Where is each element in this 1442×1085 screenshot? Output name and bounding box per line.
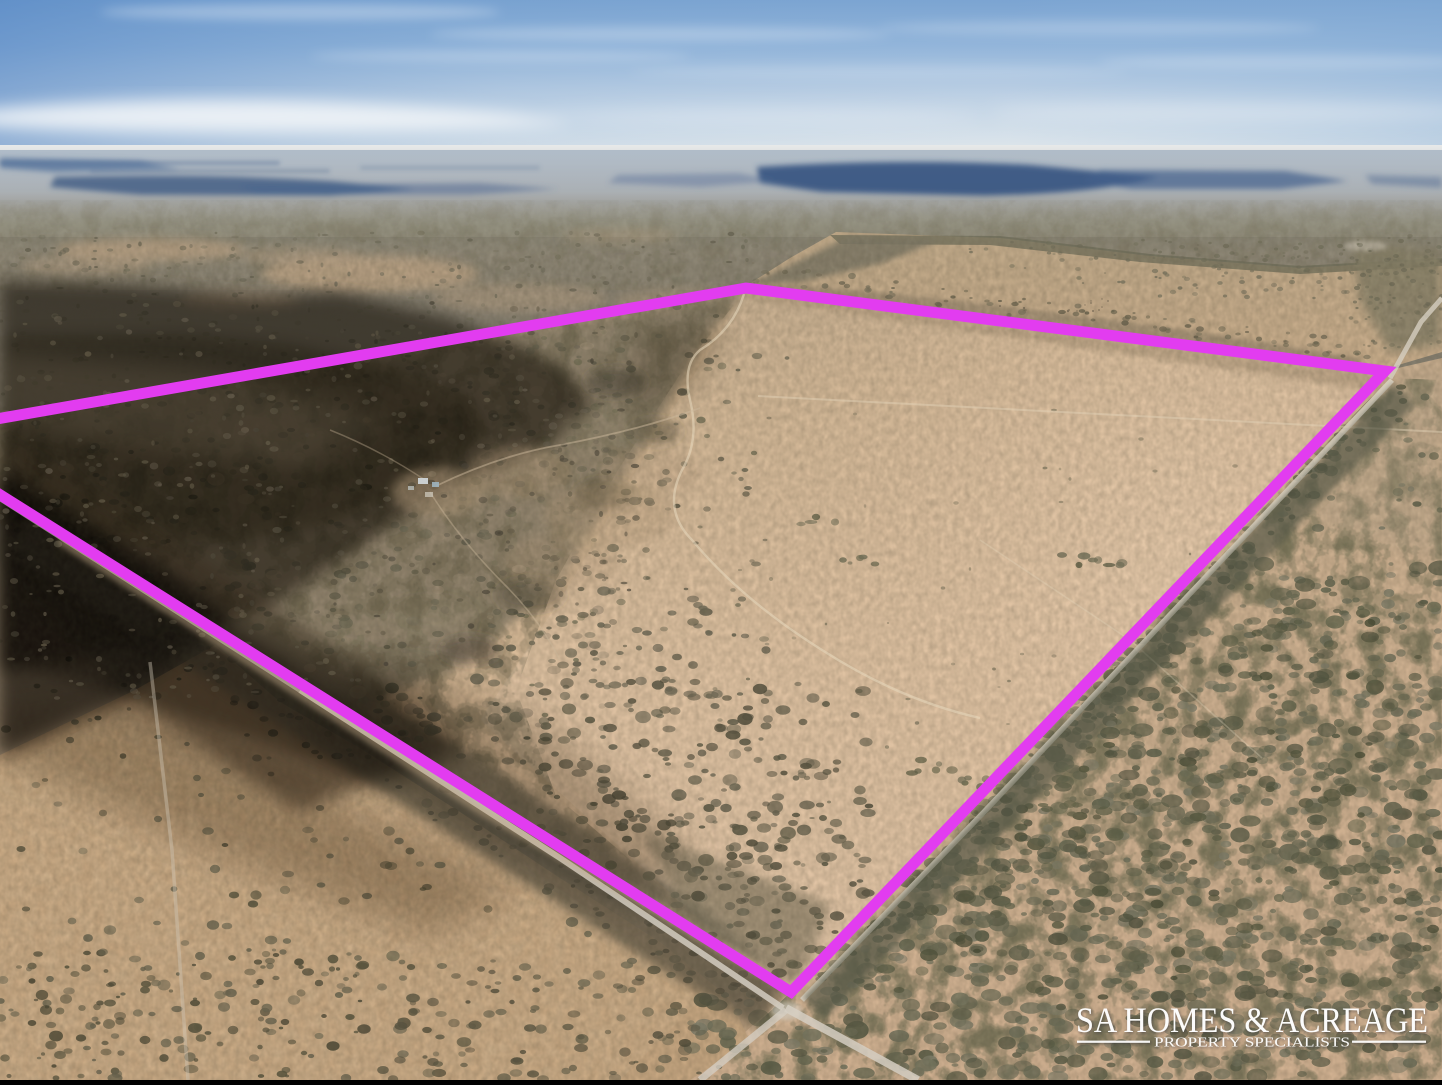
svg-text:PROPERTY SPECIALISTS: PROPERTY SPECIALISTS [1154,1035,1350,1050]
